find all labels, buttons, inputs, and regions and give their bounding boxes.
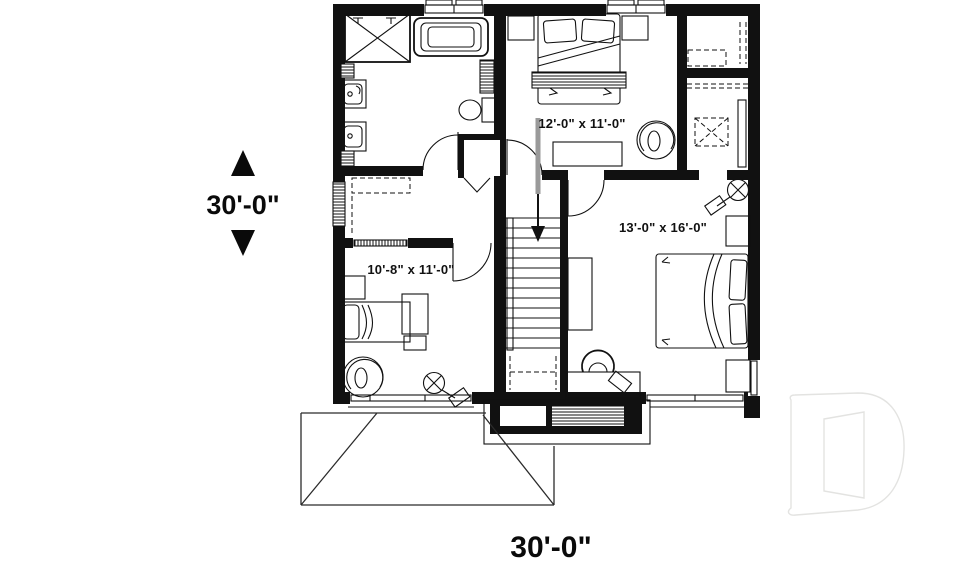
nightstand: [622, 16, 648, 40]
arrow-down-icon: [231, 230, 255, 256]
dresser: [553, 142, 622, 166]
nightstand: [726, 360, 750, 392]
toilet: [459, 98, 496, 122]
bedroom-top-furniture: [508, 14, 675, 166]
window-master: [646, 392, 744, 407]
windows: [333, 0, 760, 407]
bed-bench: [532, 72, 626, 88]
bedroom-left-furniture: [340, 276, 470, 407]
dimension-left-label: 30'-0": [206, 190, 279, 220]
stair-dormer: [484, 400, 650, 444]
arrow-up-icon: [231, 150, 255, 176]
bed-queen: [656, 254, 748, 348]
window-bath: [424, 0, 484, 16]
bathtub: [414, 18, 488, 56]
desk: [402, 294, 428, 334]
linen-shelves: [341, 60, 494, 166]
room-size-label-master: 13'-0" x 16'-0": [619, 220, 707, 235]
bed-single: [340, 302, 410, 342]
nightstand: [726, 216, 750, 246]
desk-chair: [582, 350, 614, 372]
shower-head-icon: [353, 18, 396, 24]
hall-nook: [352, 178, 410, 246]
ceiling-fan-icon: [705, 180, 749, 216]
shower: [345, 14, 410, 62]
master-door: [568, 180, 604, 216]
room-size-label-bedroom-left: 10'-8" x 11'-0": [367, 262, 454, 277]
bedroom-left-door: [453, 243, 491, 281]
bifold-door-icon: [464, 178, 490, 192]
dimension-left: 30'-0": [206, 150, 279, 256]
dresser: [568, 258, 592, 330]
bathroom-fixtures: [341, 14, 496, 166]
closets: [687, 22, 748, 167]
master-furniture: [566, 180, 750, 399]
desk-chair: [404, 336, 426, 350]
room-size-label-bedroom-top: 12'-0" x 11'-0": [538, 116, 625, 131]
corner-chair: [637, 121, 675, 159]
bed-double: [538, 14, 620, 104]
bathroom-door: [423, 132, 458, 170]
builder-logo-d-icon: [789, 393, 905, 515]
dimension-bottom-label: 30'-0": [510, 531, 591, 564]
nightstand: [508, 16, 534, 40]
window-left-wall: [333, 182, 345, 226]
floor-plan-drawing: 12'-0" x 11'-0" 13'-0" x 16'-0" 10'-8" x…: [0, 0, 960, 569]
floor-plan-page: 12'-0" x 11'-0" 13'-0" x 16'-0" 10'-8" x…: [0, 0, 960, 569]
corner-chair: [343, 357, 383, 397]
attic-access: [695, 118, 728, 146]
